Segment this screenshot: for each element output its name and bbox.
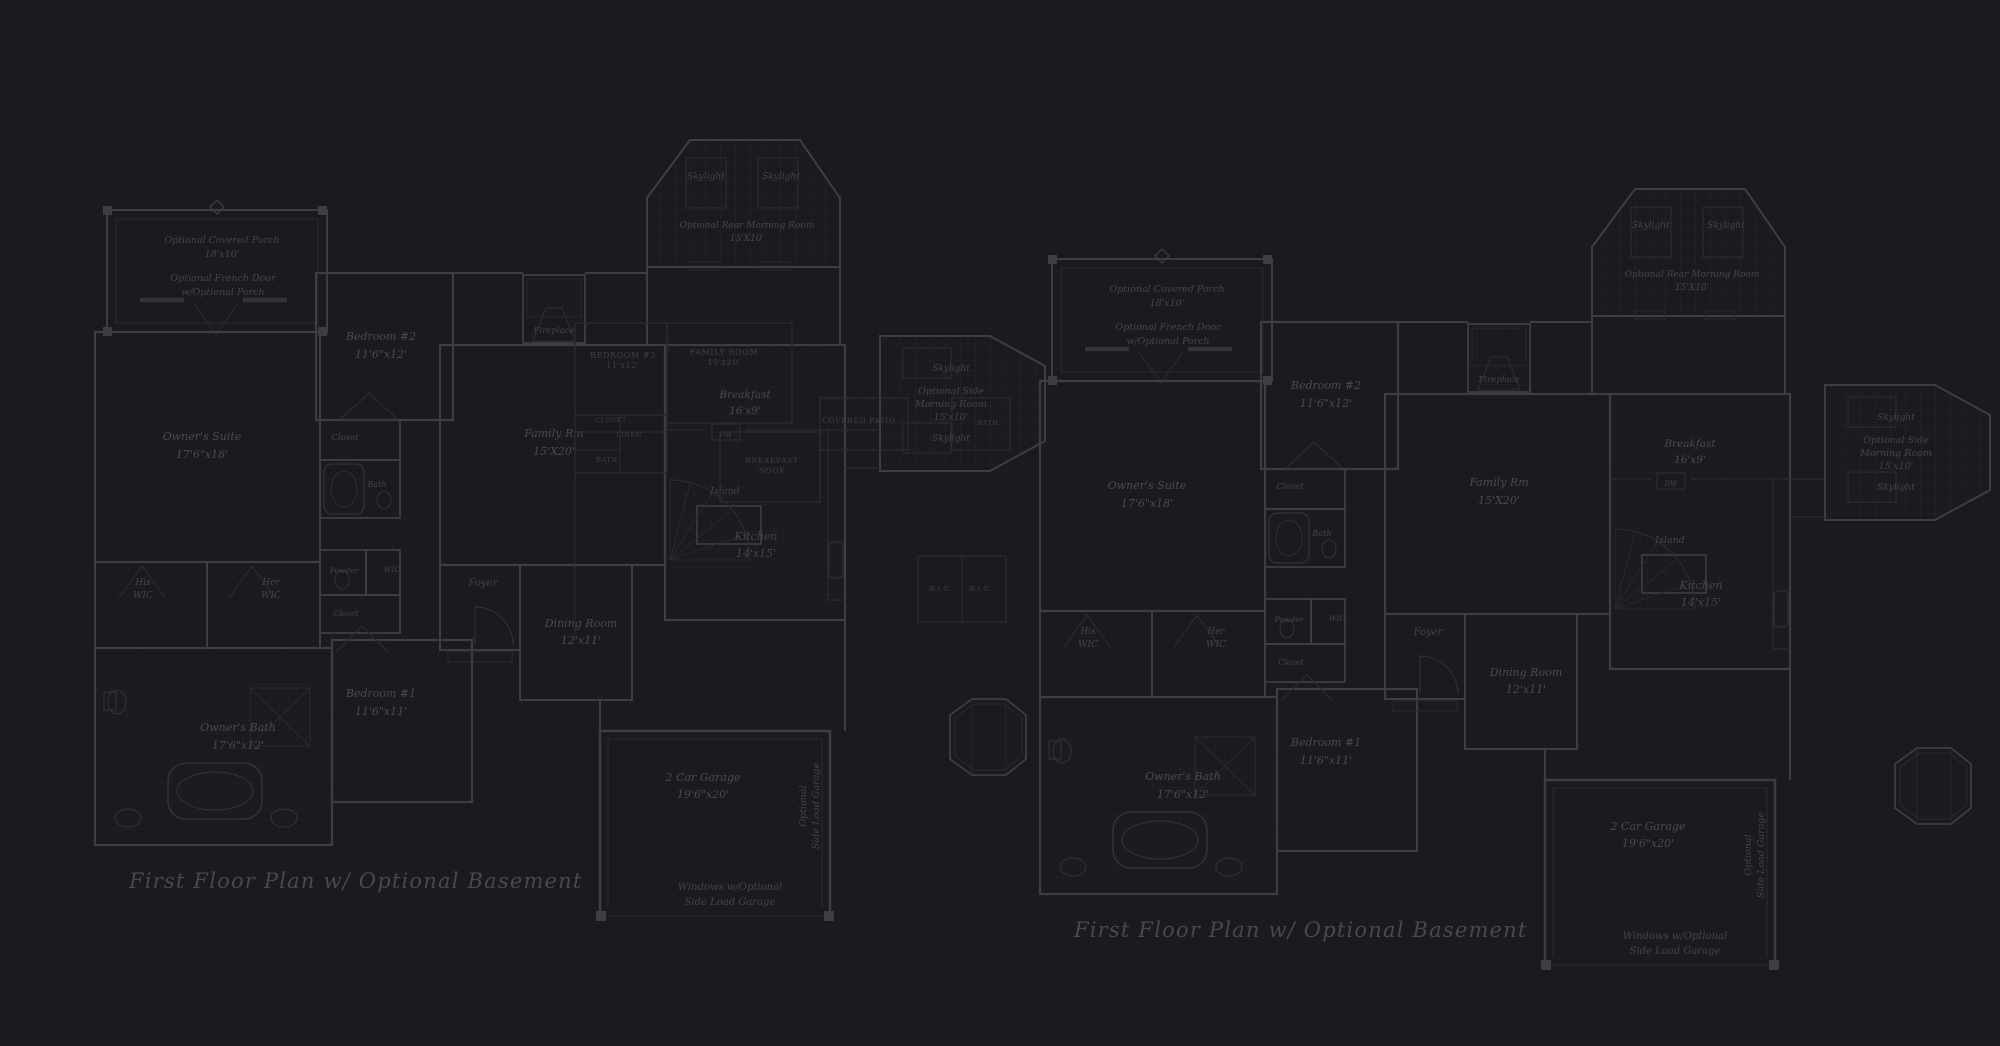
room-label-powder: Powder — [1274, 615, 1304, 624]
plan-linework — [210, 200, 224, 214]
room-label-line: Optional Covered Porch — [164, 235, 279, 246]
room-label-line: 15'X10' — [730, 234, 764, 244]
room-label-bedroom-2: Bedroom #211'6"x12' — [1290, 379, 1361, 410]
plan-linework — [667, 347, 843, 618]
room-label-line: Bedroom #1 — [1290, 736, 1361, 749]
room-label-line: Optional — [1743, 834, 1754, 875]
room-label-line: WIC — [1078, 640, 1098, 650]
plan-linework — [824, 911, 834, 921]
room-label-line: Side Load Garage — [1630, 946, 1721, 957]
room-label-line: 15'x20' — [707, 358, 740, 367]
plan-linework — [341, 393, 397, 419]
room-label-line: 11'x12' — [606, 361, 639, 370]
room-label-fireplace: Fireplace — [533, 326, 575, 336]
plan-linework — [520, 565, 632, 700]
room-label-line: Optional French Door — [170, 273, 277, 284]
room-label-bedroom-1: Bedroom #111'6"x11' — [1290, 736, 1361, 767]
room-label-line: 17'6"x12' — [1157, 788, 1209, 801]
plan-linework — [1052, 259, 1272, 381]
room-label-side-load-garage: OptionalSide Load Garage — [1743, 812, 1767, 899]
plan-linework — [527, 279, 581, 317]
room-label-line: BREAKFAST — [745, 456, 798, 465]
room-label-line: 18'x10' — [205, 249, 240, 260]
room-label-line: WIC — [133, 591, 153, 601]
room-label-line: Island — [709, 486, 740, 497]
room-label-garage: 2 Car Garage19'6"x20' — [665, 771, 741, 801]
room-label-powder: Powder — [329, 566, 359, 575]
room-label-line: Foyer — [468, 578, 499, 589]
plan-linework — [1048, 255, 1057, 264]
room-label-line: 15'x10' — [1879, 461, 1914, 472]
plan-linework — [440, 620, 845, 731]
room-label-owners-suite: Owner's Suite17'6"x18' — [1108, 479, 1187, 510]
room-label-ov-wic-2: W.I.C. — [969, 585, 992, 593]
room-label-skylight-rear-2: Skylight — [762, 172, 800, 182]
plan-linework — [1398, 316, 1785, 394]
room-label-ov-bath-west: BATH — [596, 456, 618, 464]
room-label-line: 18'x10' — [1150, 298, 1185, 309]
plan-linework — [1138, 351, 1184, 383]
room-label-line: 15'X10' — [1675, 283, 1709, 293]
room-label-closet-upper: Closet — [331, 433, 359, 443]
room-label-line: COVERED PATIO — [822, 416, 895, 425]
room-label-covered-porch: Optional Covered Porch18'x10' — [164, 235, 279, 260]
room-label-ov-bedroom-3: BEDROOM #311'x12' — [590, 351, 656, 370]
room-label-windows-note: Windows w/OptionalSide Load Garage — [1623, 931, 1727, 957]
room-label-line: Closet — [1276, 482, 1304, 492]
room-label-line: Skylight — [687, 172, 725, 182]
room-label-line: Optional — [798, 785, 809, 826]
room-label-line: Her — [1206, 627, 1225, 637]
plan-linework — [320, 460, 400, 518]
room-label-line: Optional Rear Morning Room — [680, 221, 815, 231]
room-label-line: 19'6"x20' — [1622, 837, 1674, 850]
plan-linework — [103, 206, 112, 215]
room-label-ov-covered-patio: COVERED PATIO — [822, 416, 895, 425]
room-label-line: Kitchen — [1679, 579, 1723, 592]
plan-linework — [318, 206, 327, 215]
room-label-garage: 2 Car Garage19'6"x20' — [1610, 820, 1686, 850]
plan-title: First Floor Plan w/ Optional Basement — [1073, 918, 1528, 942]
floor-plan-sheet: Optional Covered Porch18'x10'Optional Fr… — [0, 0, 2000, 1046]
room-label-line: 16'x9' — [1674, 454, 1706, 466]
room-label-line: 2 Car Garage — [665, 771, 741, 784]
room-label-line: 17'6"x18' — [1121, 497, 1173, 510]
plan-linework — [1465, 614, 1577, 749]
room-label-line: Fireplace — [533, 326, 575, 336]
plan-linework — [107, 210, 327, 332]
plan-linework — [1612, 396, 1788, 667]
room-label-line: Owner's Bath — [1145, 770, 1221, 783]
room-label-line: Bedroom #1 — [345, 687, 416, 700]
room-label-his-wic: HisWIC — [1078, 627, 1098, 650]
room-label-line: 12'x11' — [1506, 683, 1546, 696]
room-label-line: Morning Room — [914, 399, 987, 410]
room-label-foyer: Foyer — [1413, 627, 1444, 638]
plan-linework — [647, 140, 840, 267]
room-label-line: Skylight — [1707, 221, 1745, 231]
room-label-line: CLOSET — [595, 416, 627, 424]
room-label-line: Skylight — [762, 172, 800, 182]
room-label-line: 16'x9' — [729, 405, 761, 417]
plan-linework — [1269, 513, 1309, 563]
room-label-line: Skylight — [932, 434, 970, 444]
plan-linework — [1155, 249, 1169, 263]
room-label-line: LINEN — [616, 431, 642, 439]
room-label-closet-lower: Closet — [333, 609, 359, 618]
room-label-line: Dining Room — [1489, 666, 1563, 679]
plan-linework — [331, 471, 357, 507]
room-label-line: Kitchen — [734, 530, 778, 543]
plan-linework — [193, 302, 239, 334]
room-label-line: 11'6"x11' — [355, 705, 407, 718]
room-label-dining-room: Dining Room12'x11' — [544, 617, 618, 647]
room-label-line: 11'6"x12' — [355, 348, 407, 361]
plan-linework — [1263, 255, 1272, 264]
plan-linework — [596, 911, 606, 921]
plan-linework — [475, 607, 513, 645]
room-label-line: Morning Room — [1859, 448, 1932, 459]
plan-linework — [1261, 322, 1398, 469]
room-label-dining-room: Dining Room12'x11' — [1489, 666, 1563, 696]
room-label-line: DW — [1664, 480, 1679, 488]
room-label-line: 15'X20' — [533, 445, 575, 458]
plan-linework — [1895, 748, 1971, 824]
room-label-line: Windows w/Optional — [678, 882, 782, 893]
plan-linework — [1900, 753, 1967, 819]
room-label-line: WIC — [261, 591, 281, 601]
room-label-her-wic: HerWIC — [1206, 627, 1226, 650]
plan-linework — [1917, 748, 1951, 824]
room-label-line: Owner's Suite — [163, 430, 242, 443]
room-label-closet-upper: Closet — [1276, 482, 1304, 492]
room-label-line: 2 Car Garage — [1610, 820, 1686, 833]
room-label-line: Closet — [333, 609, 359, 618]
room-label-line: Family Rm — [1468, 476, 1528, 489]
room-label-dw: DW — [1664, 480, 1679, 488]
room-label-windows-note: Windows w/OptionalSide Load Garage — [678, 882, 782, 908]
room-label-line: Side Load Garage — [685, 897, 776, 908]
room-label-ov-wic-1: W.I.C. — [929, 585, 952, 593]
room-label-line: Bath — [366, 480, 386, 489]
room-label-line: Foyer — [1413, 627, 1444, 638]
plan-linework — [1592, 189, 1785, 316]
room-label-line: Bedroom #2 — [345, 330, 416, 343]
room-label-closet-lower: Closet — [1278, 658, 1304, 667]
room-label-line: Dining Room — [544, 617, 618, 630]
first-floor-plan-left: Optional Covered Porch18'x10'Optional Fr… — [95, 140, 1045, 921]
room-label-foyer: Foyer — [468, 578, 499, 589]
plan-linework — [1790, 479, 1825, 517]
room-label-line: 14'x15' — [1681, 596, 1721, 609]
room-label-line: Optional French Door — [1115, 322, 1222, 333]
room-label-line: Closet — [331, 433, 359, 443]
room-label-line: Windows w/Optional — [1623, 931, 1727, 942]
plan-linework — [972, 699, 1006, 775]
room-label-line: FAMILY ROOM — [690, 348, 759, 357]
plan-linework — [1541, 960, 1551, 970]
room-label-line: Her — [261, 578, 280, 588]
room-label-line: Bath — [1311, 529, 1331, 538]
room-label-owners-suite: Owner's Suite17'6"x18' — [163, 430, 242, 461]
plan-linework — [950, 699, 1026, 775]
room-label-line: Owner's Bath — [200, 721, 276, 734]
room-label-skylight-rear-1: Skylight — [687, 172, 725, 182]
room-label-line: Bedroom #2 — [1290, 379, 1361, 392]
room-label-line: Powder — [1274, 615, 1304, 624]
room-label-line: Island — [1654, 535, 1685, 546]
plan-linework — [332, 640, 472, 802]
plan-linework — [1276, 520, 1302, 556]
room-label-her-wic: HerWIC — [261, 578, 281, 601]
room-label-line: Side Load Garage — [811, 763, 822, 850]
room-label-line: w/Optional Porch — [181, 287, 264, 298]
room-label-skylight-rear-1: Skylight — [1632, 221, 1670, 231]
plan-linework — [1472, 328, 1526, 366]
room-label-line: Owner's Suite — [1108, 479, 1187, 492]
room-label-island: Island — [1654, 535, 1685, 546]
room-label-skylight-side-bot: Skylight — [1877, 483, 1915, 493]
room-label-wic-small: WIC — [1329, 614, 1346, 623]
room-label-line: WIC — [384, 565, 401, 574]
room-label-line: WIC — [1206, 640, 1226, 650]
room-label-skylight-rear-2: Skylight — [1707, 221, 1745, 231]
room-label-line: Optional Covered Porch — [1109, 284, 1224, 295]
room-label-line: 11'6"x12' — [1300, 397, 1352, 410]
plan-linework — [448, 652, 512, 662]
plan-linework — [453, 267, 840, 345]
plan-linework — [1769, 960, 1779, 970]
room-label-line: WIC — [1329, 614, 1346, 623]
room-label-line: 15'x10' — [934, 412, 969, 423]
room-label-ov-bath-east: BATH — [977, 419, 999, 427]
room-label-line: BATH — [977, 419, 999, 427]
room-label-line: Skylight — [1877, 483, 1915, 493]
room-label-wic-small: WIC — [384, 565, 401, 574]
room-label-line: BEDROOM #3 — [590, 351, 656, 360]
room-label-ov-linen: LINEN — [616, 431, 642, 439]
room-label-island: Island — [709, 486, 740, 497]
plan-linework — [377, 491, 391, 509]
room-label-line: 15'X20' — [1478, 494, 1520, 507]
room-label-skylight-side-top: Skylight — [1877, 413, 1915, 423]
room-label-skylight-side-top: Skylight — [932, 364, 970, 374]
room-label-line: W.I.C. — [929, 585, 952, 593]
room-label-line: Fireplace — [1478, 375, 1520, 385]
room-label-covered-porch: Optional Covered Porch18'x10' — [1109, 284, 1224, 309]
room-label-line: Closet — [1278, 658, 1304, 667]
room-label-line: Skylight — [932, 364, 970, 374]
plan-linework — [955, 704, 1022, 770]
room-label-his-wic: HisWIC — [133, 578, 153, 601]
plan-linework — [1385, 669, 1790, 780]
room-label-line: Breakfast — [1663, 438, 1716, 450]
room-label-line: NOOK — [759, 466, 786, 475]
room-label-line: W.I.C. — [969, 585, 992, 593]
room-label-line: Optional Side — [1863, 435, 1929, 446]
plan-linework — [1393, 701, 1457, 711]
plan-linework — [95, 332, 320, 562]
room-label-skylight-side-bot: Skylight — [932, 434, 970, 444]
room-label-line: Side Load Garage — [1756, 812, 1767, 899]
first-floor-plan-right: Optional Covered Porch18'x10'Optional Fr… — [1040, 189, 1990, 970]
room-label-ov-closet: CLOSET — [595, 416, 627, 424]
room-label-line: w/Optional Porch — [1126, 336, 1209, 347]
room-label-line: Skylight — [1632, 221, 1670, 231]
room-label-line: 14'x15' — [736, 547, 776, 560]
room-label-bath-upper: Bath — [1311, 529, 1331, 538]
room-label-family-rm: Family Rm15'X20' — [1468, 476, 1528, 507]
plan-linework — [1040, 381, 1265, 611]
room-label-line: 17'6"x18' — [176, 448, 228, 461]
plan-linework — [1420, 656, 1458, 694]
floor-plans-canvas: Optional Covered Porch18'x10'Optional Fr… — [0, 0, 2000, 1046]
room-label-french-door-note: Optional French Doorw/Optional Porch — [170, 273, 277, 298]
plan-linework — [324, 464, 364, 514]
room-label-fireplace: Fireplace — [1478, 375, 1520, 385]
room-label-bedroom-2: Bedroom #211'6"x12' — [345, 330, 416, 361]
room-label-line: Powder — [329, 566, 359, 575]
room-label-line: 19'6"x20' — [677, 788, 729, 801]
plan-linework — [1265, 509, 1345, 567]
plan-title: First Floor Plan w/ Optional Basement — [128, 869, 583, 893]
room-label-line: 17'6"x12' — [212, 739, 264, 752]
plan-linework — [1277, 689, 1417, 851]
room-label-line: BATH — [596, 456, 618, 464]
room-label-line: Breakfast — [718, 389, 771, 401]
room-label-french-door-note: Optional French Doorw/Optional Porch — [1115, 322, 1222, 347]
plan-linework — [316, 273, 453, 420]
plan-linework — [1286, 442, 1342, 468]
room-label-bedroom-1: Bedroom #111'6"x11' — [345, 687, 416, 718]
room-label-line: 11'6"x11' — [1300, 754, 1352, 767]
room-label-line: Skylight — [1877, 413, 1915, 423]
room-label-line: His — [134, 578, 151, 588]
room-label-line: Optional Rear Morning Room — [1625, 270, 1760, 280]
room-label-side-load-garage: OptionalSide Load Garage — [798, 763, 822, 850]
plan-linework — [1322, 540, 1336, 558]
room-label-bath-upper: Bath — [366, 480, 386, 489]
room-label-line: His — [1079, 627, 1096, 637]
room-label-line: 12'x11' — [561, 634, 601, 647]
room-label-line: Optional Side — [918, 386, 984, 397]
